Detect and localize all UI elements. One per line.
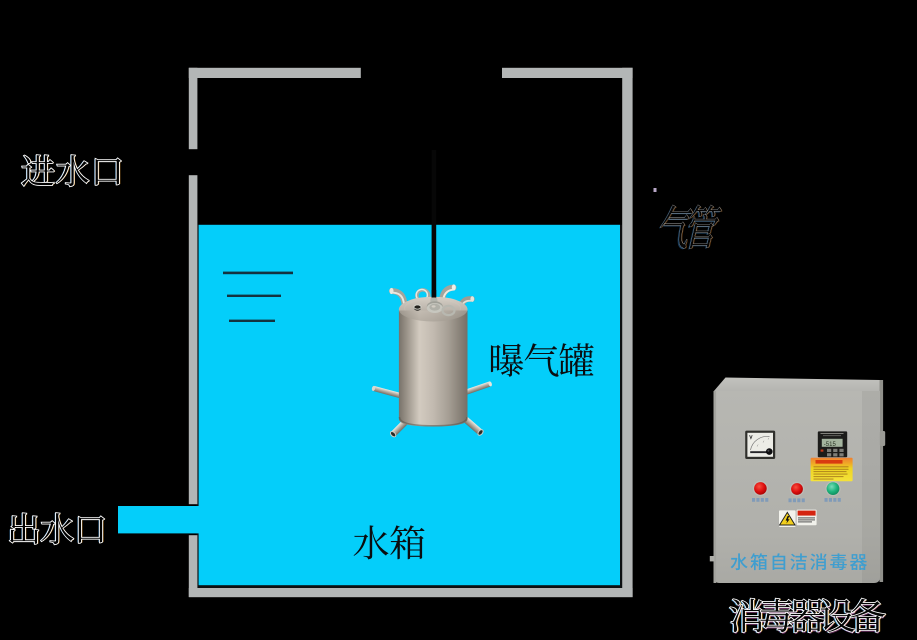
svg-text:-515: -515 [824, 442, 837, 448]
